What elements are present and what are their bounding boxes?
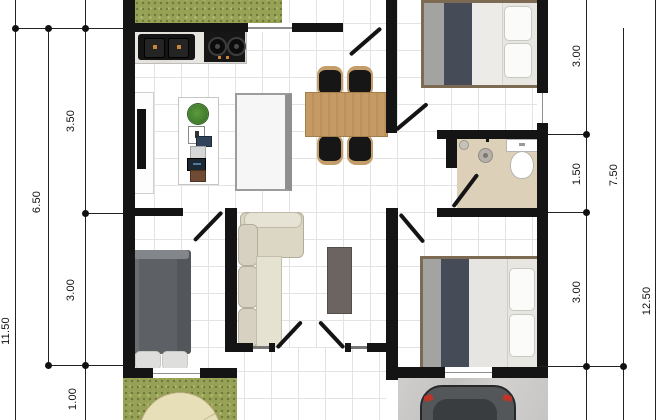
dim-tick [583, 209, 590, 216]
entry-sidelight [351, 346, 367, 349]
carport-slab [398, 378, 548, 420]
entry-sidelight [253, 346, 269, 349]
wall-top-a [123, 23, 243, 32]
dim-line-right-750 [623, 28, 624, 420]
dim-label-right-750: 7.50 [607, 153, 621, 197]
sink-basin [144, 38, 165, 58]
burner [208, 37, 227, 56]
dim-tick [82, 210, 89, 217]
sofa-back-cushion [238, 224, 258, 266]
wall-entry-left [225, 343, 247, 352]
dim-label-right-150: 1.50 [570, 152, 584, 196]
pillow [509, 314, 535, 357]
car-roof [433, 399, 497, 420]
bed-sheet [469, 259, 508, 370]
dim-label-left-650: 6.50 [30, 180, 44, 224]
dim-label-left-1150: 11.50 [0, 309, 13, 353]
bed-bottom-right [420, 256, 546, 373]
dim-label-left-350: 3.50 [64, 99, 78, 143]
dim-tick [45, 362, 52, 369]
dim-line-left-total [15, 0, 16, 420]
bed-fold [133, 250, 189, 259]
terrace-tile-floor [225, 348, 386, 420]
car-taillight-right [502, 394, 512, 402]
pillow [509, 268, 535, 311]
dim-line-right-total [655, 0, 656, 420]
window-bedroom1 [537, 88, 548, 128]
wall-living-right [386, 208, 398, 380]
kitchen-counter [134, 31, 247, 64]
sofa-seat [256, 256, 282, 347]
pillow [504, 43, 532, 78]
dining-chair [317, 134, 343, 165]
dim-tick [583, 131, 590, 138]
garden-top [134, 0, 282, 24]
car-icon [420, 385, 516, 420]
dim-ext-bottom-right [537, 366, 623, 367]
toilet-bowl [510, 151, 534, 179]
sofa-back-cushion [238, 308, 258, 347]
tree-icon [139, 392, 221, 420]
dim-label-right-1250: 12.50 [640, 279, 654, 323]
pillow [504, 6, 532, 41]
bed-runner [423, 259, 441, 370]
wall-top-b [297, 23, 343, 32]
dim-tick [12, 25, 19, 32]
dining-chair [347, 134, 373, 165]
wall-right-outer-b [537, 128, 548, 378]
wall-bathroom-left-stub [446, 130, 457, 168]
wall-right-outer-a [537, 0, 548, 88]
tv-icon [137, 109, 146, 169]
dim-tick [620, 363, 627, 370]
wall-left-outer [123, 0, 135, 378]
window-kitchen [243, 23, 297, 32]
burner [227, 37, 246, 56]
wall-hall-left [123, 208, 183, 216]
dining-table [305, 92, 388, 137]
wall-bedroom1-left [386, 0, 397, 133]
stove-knob [218, 56, 221, 59]
bed-sheet [472, 3, 503, 85]
car-taillight-left [423, 394, 433, 402]
shower-drain-icon [459, 140, 469, 150]
entry-door-post [269, 343, 275, 352]
wall-bedroom3-right [225, 208, 237, 348]
bed-top-right [421, 0, 543, 88]
wall-bedroom3-bottom-b [205, 368, 237, 378]
window-bedroom3 [148, 368, 205, 378]
wall-bedroom3-bottom-a [123, 368, 148, 378]
tv-console [327, 247, 352, 314]
floor-plan: 3.50 6.50 3.00 11.50 1.00 3.00 1.50 3.00… [0, 0, 665, 420]
toilet-icon [506, 139, 538, 179]
wall-bedroom2-bottom-a [386, 367, 440, 378]
dim-label-right-300-bottom: 3.00 [570, 270, 584, 314]
dim-ext-mid-left [85, 213, 123, 214]
dim-tick [583, 363, 590, 370]
wall-bathroom-bottom [437, 208, 548, 217]
wall-entry-right [373, 343, 398, 352]
sink-basin [168, 38, 189, 58]
kitchen-island [178, 97, 219, 185]
breakfast-table [235, 93, 292, 191]
dim-ext-bath-bottom [548, 212, 586, 213]
bed-blanket [444, 3, 472, 85]
dim-tick [82, 362, 89, 369]
dim-ext-bath-top [548, 134, 586, 135]
garden-bottom [123, 378, 237, 420]
plant-icon [188, 104, 208, 124]
dim-label-left-300: 3.00 [64, 268, 78, 312]
kitchen-sink-icon [138, 34, 195, 60]
dim-label-right-300-top: 3.00 [570, 34, 584, 78]
bed-runner [424, 3, 444, 85]
bed-bottom-left [131, 250, 191, 370]
appliance-icon [190, 170, 206, 182]
floor-drain-icon [478, 148, 493, 163]
dim-tick [45, 25, 52, 32]
stove-icon [204, 32, 245, 62]
window-bedroom2 [440, 367, 497, 378]
bed-blanket [441, 259, 469, 370]
bed-blanket [131, 250, 191, 354]
dim-line-left-650 [48, 28, 49, 365]
sofa-back-cushion [238, 266, 258, 308]
dim-tick [82, 25, 89, 32]
dim-ext-top [15, 28, 123, 29]
stove-knob [226, 56, 229, 59]
dim-label-left-100: 1.00 [66, 377, 80, 420]
